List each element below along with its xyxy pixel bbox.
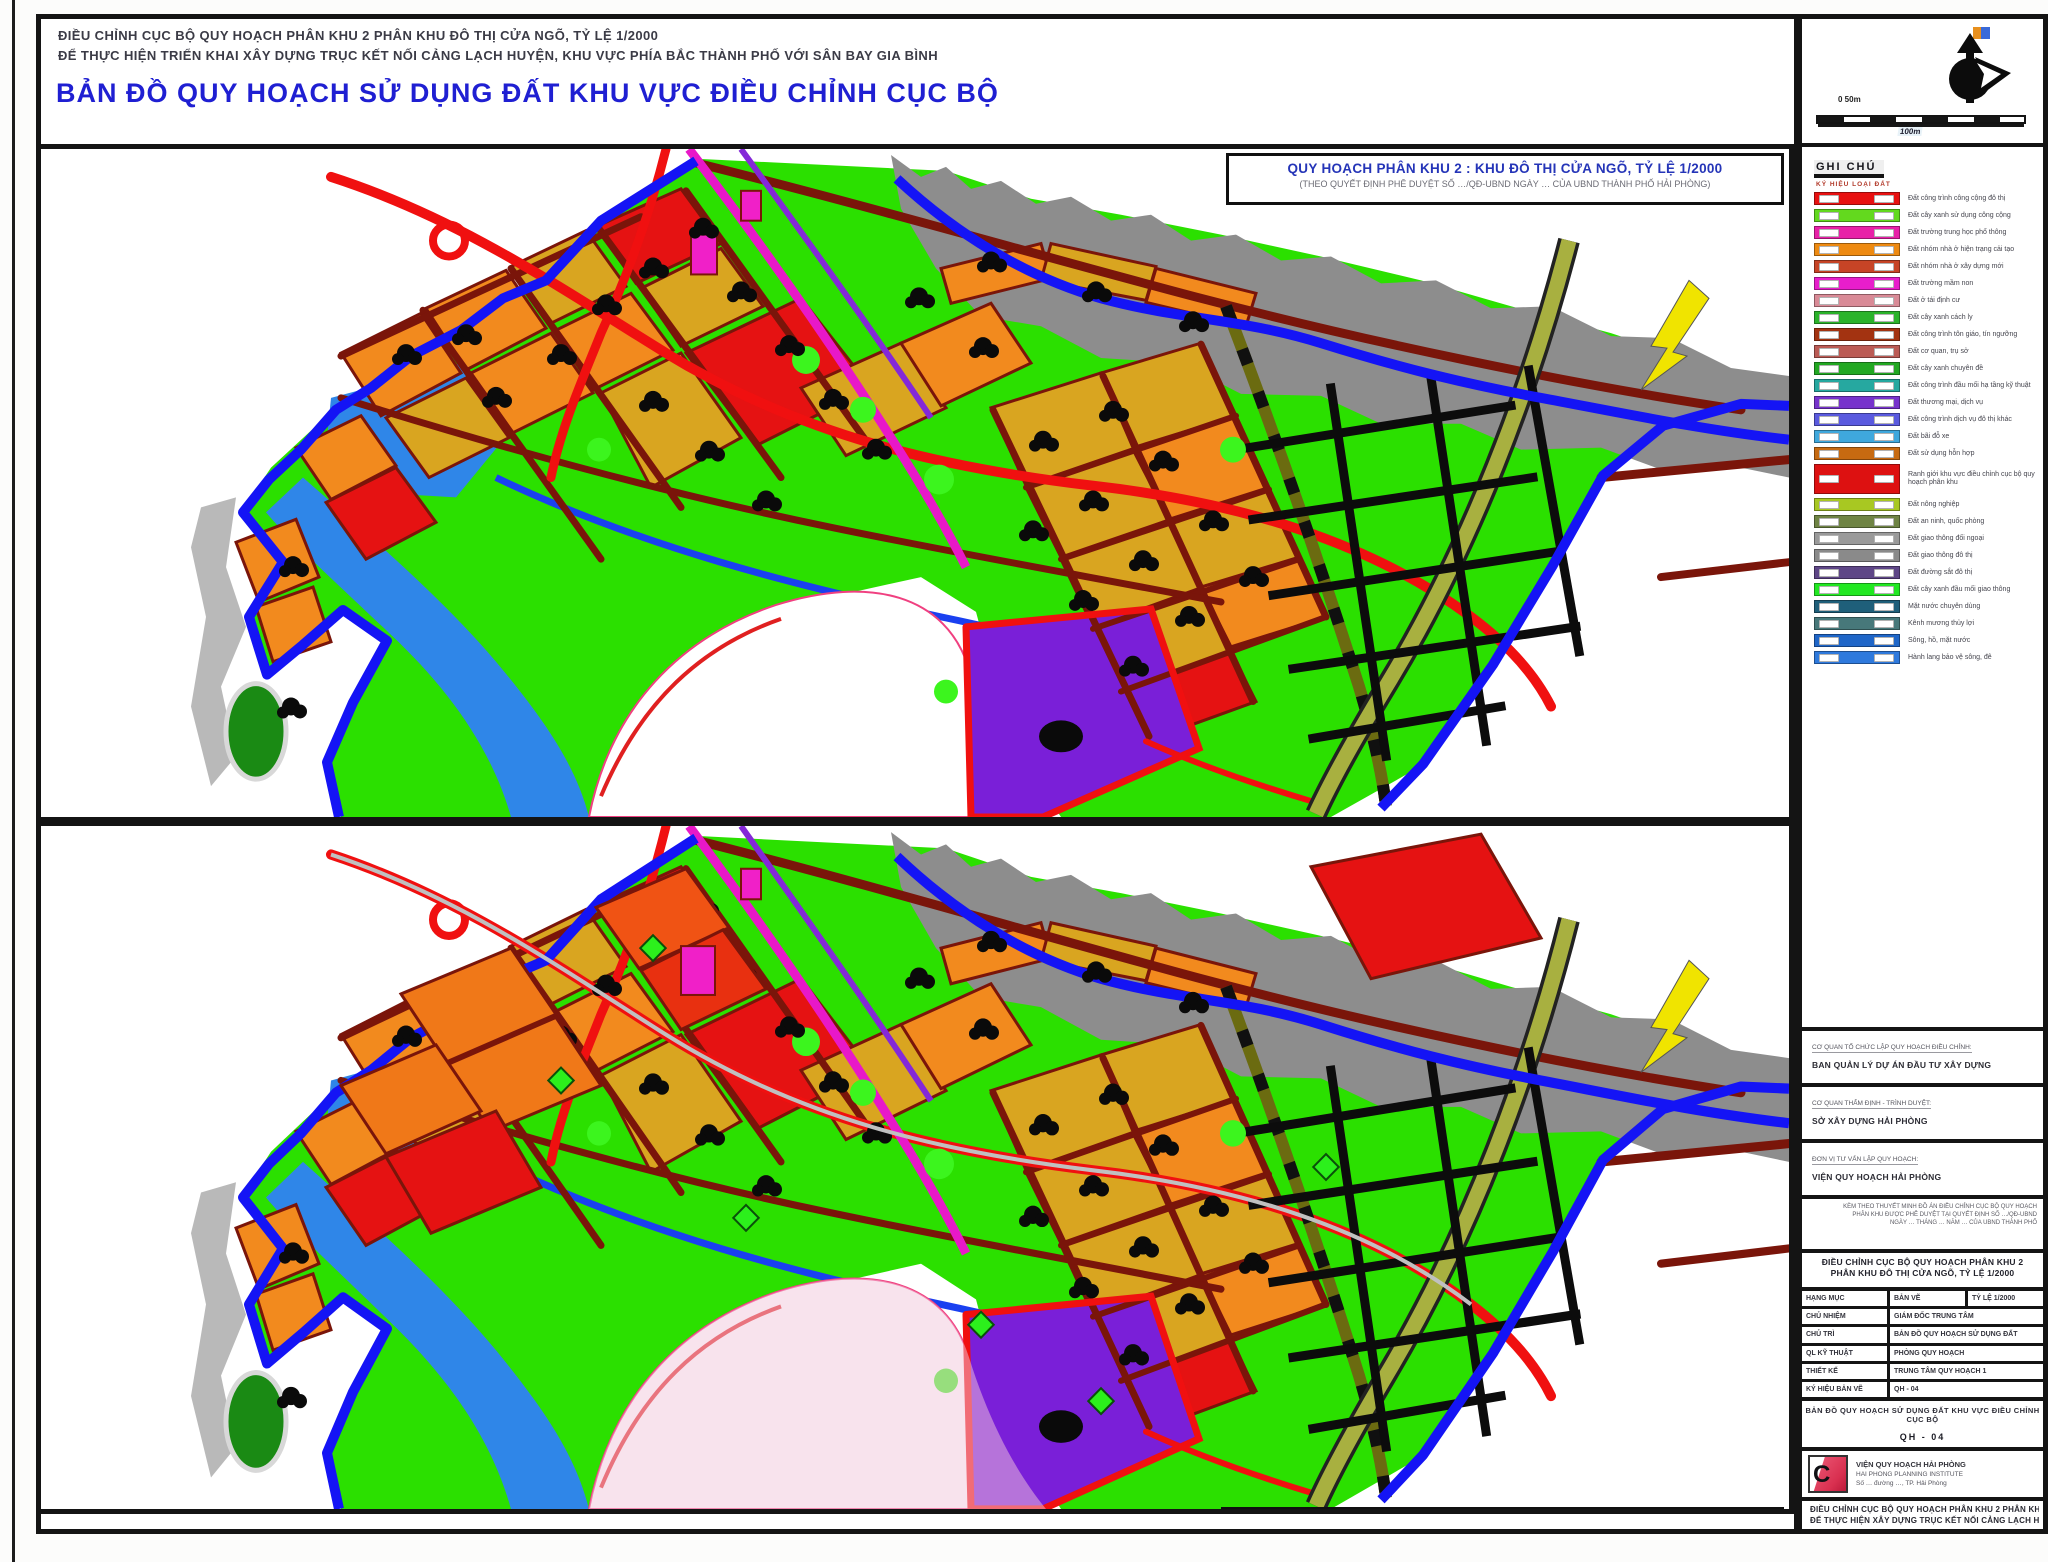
title-block-agency-row: CƠ QUAN THẨM ĐỊNH - TRÌNH DUYỆT:SỞ XÂY D…	[1802, 1087, 2043, 1143]
institute-logo-icon: C	[1808, 1455, 1848, 1493]
legend-label: Sông, hồ, mặt nước	[1908, 637, 1970, 645]
title-block-cell: CHỦ NHIỆM	[1802, 1309, 1890, 1324]
title-block-agency-row: CƠ QUAN TỔ CHỨC LẬP QUY HOẠCH ĐIỀU CHỈNH…	[1802, 1031, 2043, 1087]
legend-label: Đất giao thông đối ngoại	[1908, 535, 1984, 543]
legend-swatch	[1814, 413, 1900, 426]
legend-subtitle: KÝ HIỆU LOẠI ĐẤT	[1816, 181, 2043, 188]
legend-swatch	[1814, 277, 1900, 290]
legend-swatch	[1814, 311, 1900, 324]
legend-swatch	[1814, 192, 1900, 205]
legend-label: Đất trường trung học phổ thông	[1908, 229, 2006, 237]
legend-swatch	[1814, 430, 1900, 443]
legend-item: Đất thương mại, dịch vụ	[1814, 396, 2043, 409]
title-block-cell: TỶ LỆ 1/2000	[1968, 1291, 2043, 1306]
legend-item: Hành lang bảo vệ sông, đê	[1814, 651, 2043, 664]
legend-swatch	[1814, 617, 1900, 630]
title-block-agency-row: ĐƠN VỊ TƯ VẤN LẬP QUY HOẠCH:VIỆN QUY HOẠ…	[1802, 1143, 2043, 1199]
legend-label: Đất cây xanh đầu mối giao thông	[1908, 586, 2010, 594]
title-block-cell: PHÒNG QUY HOẠCH	[1890, 1346, 2043, 1361]
title-block-cell: QL KỸ THUẬT	[1802, 1346, 1890, 1361]
legend-item: Đất nhóm nhà ở xây dựng mới	[1814, 260, 2043, 273]
planning-sheet: ĐIỀU CHỈNH CỤC BỘ QUY HOẠCH PHÂN KHU 2 P…	[0, 0, 2048, 1562]
title-block-table-row: CHỦ NHIỆMGIÁM ĐỐC TRUNG TÂM	[1802, 1309, 2043, 1327]
legend-label: Đất nhóm nhà ở xây dựng mới	[1908, 263, 2004, 271]
legend-label: Đất giao thông đô thị	[1908, 552, 1973, 560]
title-block-cell: CHỦ TRÌ	[1802, 1327, 1890, 1342]
sidebar: 0 50m 100m GHI CHÚ KÝ HIỆU LOẠI ĐẤT Đất …	[1794, 14, 2048, 1534]
legend-label: Đất nông nghiệp	[1908, 501, 1959, 509]
legend-label: Đất công trình đầu mối hạ tầng kỹ thuật	[1908, 382, 2031, 390]
logo-letter: C	[1813, 1461, 1830, 1489]
legend-swatch	[1814, 634, 1900, 647]
title-block-cell: TRUNG TÂM QUY HOẠCH 1	[1890, 1364, 2043, 1379]
header-line-2: ĐỂ THỰC HIỆN TRIỂN KHAI XÂY DỰNG TRỤC KẾ…	[58, 48, 938, 63]
legend-swatch	[1814, 651, 1900, 664]
legend-item: Đất cơ quan, trụ sở	[1814, 345, 2043, 358]
footer-line: ĐIỀU CHỈNH CỤC BỘ QUY HOẠCH PHÂN KHU 2 P…	[1810, 1504, 2039, 1515]
legend-swatch	[1814, 294, 1900, 307]
legend-swatch	[1814, 532, 1900, 545]
note-line: PHÂN KHU ĐƯỢC PHÊ DUYỆT TẠI QUYẾT ĐỊNH S…	[1816, 1211, 2037, 1219]
drawing-title-line1: ĐIỀU CHỈNH CỤC BỘ QUY HOẠCH PHÂN KHU 2	[1802, 1257, 2043, 1268]
legend-label: Đất công trình tôn giáo, tín ngưỡng	[1908, 331, 2017, 339]
title-block-agencies: CƠ QUAN TỔ CHỨC LẬP QUY HOẠCH ĐIỀU CHỈNH…	[1802, 1031, 2043, 1199]
legend-item: Đất công trình dịch vụ đô thị khác	[1814, 413, 2043, 426]
adjusted-plan-banner: ĐIỀU CHỈNH KỲ NÀY	[1221, 1507, 1784, 1509]
logo-line: VIỆN QUY HOẠCH HẢI PHÒNG	[1856, 1460, 1966, 1470]
legend-item: Đất giao thông đối ngoại	[1814, 532, 2043, 545]
scale-label-top: 0 50m	[1836, 95, 1863, 104]
legend-swatch	[1814, 583, 1900, 596]
legend-item: Đất công trình tôn giáo, tín ngưỡng	[1814, 328, 2043, 341]
legend-item: Đất giao thông đô thị	[1814, 549, 2043, 562]
title-block-table-row: CHỦ TRÌBẢN ĐỒ QUY HOẠCH SỬ DỤNG ĐẤT	[1802, 1327, 2043, 1345]
legend-label: Đất sử dụng hỗn hợp	[1908, 450, 1975, 458]
legend-item: Đất đường sắt đô thị	[1814, 566, 2043, 579]
legend-swatch	[1814, 243, 1900, 256]
adjusted-plan-map	[41, 826, 1789, 1509]
legend-label: Đất cây xanh sử dụng công cộng	[1908, 212, 2011, 220]
title-block-table-row: QL KỸ THUẬTPHÒNG QUY HOẠCH	[1802, 1346, 2043, 1364]
legend-label: Đất cây xanh chuyên đề	[1908, 365, 1983, 373]
legend-label: Đất công trình dịch vụ đô thị khác	[1908, 416, 2012, 424]
north-arrow-icon	[1925, 25, 2015, 117]
legend-item: Ranh giới khu vực điều chỉnh cục bộ quy …	[1814, 464, 2043, 494]
title-block-cell: QH - 04	[1890, 1382, 2043, 1397]
scale-label-bottom: 100m	[1897, 127, 1923, 136]
map-area: QUY HOẠCH PHÂN KHU 2 : KHU ĐÔ THỊ CỬA NG…	[36, 144, 1794, 1514]
legend-swatch	[1814, 328, 1900, 341]
legend-title: GHI CHÚ	[1814, 160, 1884, 178]
legend-item: Đất cây xanh cách ly	[1814, 311, 2043, 324]
title-block-table: HẠNG MỤCBẢN VẼTỶ LỆ 1/2000CHỦ NHIỆMGIÁM …	[1802, 1291, 2043, 1401]
legend-swatch	[1814, 566, 1900, 579]
legend-item: Mặt nước chuyên dùng	[1814, 600, 2043, 613]
legend-label: Đất an ninh, quốc phòng	[1908, 518, 1984, 526]
page-title: BẢN ĐỒ QUY HOẠCH SỬ DỤNG ĐẤT KHU VỰC ĐIỀ…	[56, 78, 999, 109]
legend-item: Đất trường mầm non	[1814, 277, 2043, 290]
approved-plan-banner: QUY HOẠCH PHÂN KHU 2 : KHU ĐÔ THỊ CỬA NG…	[1226, 153, 1784, 205]
title-block-cell: BẢN ĐỒ QUY HOẠCH SỬ DỤNG ĐẤT	[1890, 1327, 2043, 1342]
legend-swatch	[1814, 209, 1900, 222]
legend-item: Đất công trình đầu mối hạ tầng kỹ thuật	[1814, 379, 2043, 392]
legend-swatch	[1814, 226, 1900, 239]
legend-item: Đất cây xanh đầu mối giao thông	[1814, 583, 2043, 596]
title-block-notes: KÈM THEO THUYẾT MINH ĐỒ ÁN ĐIỀU CHỈNH CỤ…	[1802, 1199, 2043, 1253]
map-panel-approved-plan: QUY HOẠCH PHÂN KHU 2 : KHU ĐÔ THỊ CỬA NG…	[41, 149, 1789, 817]
sheet-number: QH - 04	[1802, 1432, 2043, 1442]
legend-swatch	[1814, 345, 1900, 358]
scale-bar	[1816, 115, 2026, 124]
sheet-footer: ĐIỀU CHỈNH CỤC BỘ QUY HOẠCH PHÂN KHU 2 P…	[1802, 1501, 2043, 1526]
legend-item: Đất bãi đỗ xe	[1814, 430, 2043, 443]
map-divider	[41, 817, 1789, 826]
logo-line: Số … đường …, TP. Hải Phòng	[1856, 1479, 1966, 1488]
legend-swatch	[1814, 464, 1900, 494]
left-margin-line	[12, 0, 15, 1562]
legend-swatch	[1814, 396, 1900, 409]
legend-label: Đất ở tái định cư	[1908, 297, 1960, 305]
note-line: NGÀY … THÁNG … NĂM … CỦA UBND THÀNH PHỐ	[1816, 1219, 2037, 1227]
title-block-cell: BẢN VẼ	[1890, 1291, 1968, 1306]
legend-label: Đất cơ quan, trụ sở	[1908, 348, 1969, 356]
title-block-cell: THIẾT KẾ	[1802, 1364, 1890, 1379]
legend-label: Ranh giới khu vực điều chỉnh cục bộ quy …	[1908, 471, 2038, 487]
legend-item: Đất công trình công cộng đô thị	[1814, 192, 2043, 205]
legend-label: Kênh mương thủy lợi	[1908, 620, 1974, 628]
legend-item: Đất nông nghiệp	[1814, 498, 2043, 511]
legend-label: Hành lang bảo vệ sông, đê	[1908, 654, 1992, 662]
legend-swatch	[1814, 447, 1900, 460]
legend-item: Đất nhóm nhà ở hiện trạng cải tạo	[1814, 243, 2043, 256]
logo-line: HAI PHONG PLANNING INSTITUTE	[1856, 1470, 1966, 1479]
title-block-cell: HẠNG MỤC	[1802, 1291, 1890, 1306]
title-block-cell: KÝ HIỆU BẢN VẼ	[1802, 1382, 1890, 1397]
legend-swatch	[1814, 379, 1900, 392]
legend-label: Đất nhóm nhà ở hiện trạng cải tạo	[1908, 246, 2014, 254]
legend: GHI CHÚ KÝ HIỆU LOẠI ĐẤT Đất công trình …	[1802, 147, 2043, 1031]
legend-label: Đất cây xanh cách ly	[1908, 314, 1973, 322]
legend-label: Đất bãi đỗ xe	[1908, 433, 1949, 441]
legend-swatch	[1814, 515, 1900, 528]
legend-swatch	[1814, 260, 1900, 273]
title-block-table-row: THIẾT KẾTRUNG TÂM QUY HOẠCH 1	[1802, 1364, 2043, 1382]
institute-logo-row: C VIỆN QUY HOẠCH HẢI PHÒNG HAI PHONG PLA…	[1802, 1451, 2043, 1501]
legend-item: Sông, hồ, mặt nước	[1814, 634, 2043, 647]
drawing-title-block: ĐIỀU CHỈNH CỤC BỘ QUY HOẠCH PHÂN KHU 2 P…	[1802, 1253, 2043, 1291]
legend-swatch	[1814, 498, 1900, 511]
header-line-1: ĐIỀU CHỈNH CỤC BỘ QUY HOẠCH PHÂN KHU 2 P…	[58, 28, 658, 43]
legend-swatch	[1814, 549, 1900, 562]
legend-item: Đất an ninh, quốc phòng	[1814, 515, 2043, 528]
approved-plan-banner-subtitle: (THEO QUYẾT ĐỊNH PHÊ DUYỆT SỐ …/QĐ-UBND …	[1229, 179, 1781, 189]
title-block-cell: GIÁM ĐỐC TRUNG TÂM	[1890, 1309, 2043, 1324]
map-panel-adjusted-plan: ĐIỀU CHỈNH KỲ NÀY	[41, 826, 1789, 1509]
legend-item: Kênh mương thủy lợi	[1814, 617, 2043, 630]
sheet-title: BẢN ĐỒ QUY HOẠCH SỬ DỤNG ĐẤT KHU VỰC ĐIỀ…	[1802, 1406, 2043, 1424]
approved-plan-banner-title: QUY HOẠCH PHÂN KHU 2 : KHU ĐÔ THỊ CỬA NG…	[1229, 161, 1781, 176]
title-block-table-row: HẠNG MỤCBẢN VẼTỶ LỆ 1/2000	[1802, 1291, 2043, 1309]
legend-label: Đất thương mại, dịch vụ	[1908, 399, 1983, 407]
legend-label: Đất đường sắt đô thị	[1908, 569, 1972, 577]
legend-swatch	[1814, 362, 1900, 375]
title-block-table-row: KÝ HIỆU BẢN VẼQH - 04	[1802, 1382, 2043, 1397]
legend-item: Đất sử dụng hỗn hợp	[1814, 447, 2043, 460]
note-line: KÈM THEO THUYẾT MINH ĐỒ ÁN ĐIỀU CHỈNH CỤ…	[1816, 1203, 2037, 1211]
legend-item: Đất cây xanh chuyên đề	[1814, 362, 2043, 375]
footer-line: ĐỂ THỰC HIỆN XÂY DỰNG TRỤC KẾT NỐI CẢNG …	[1810, 1515, 2039, 1526]
legend-item: Đất ở tái định cư	[1814, 294, 2043, 307]
legend-label: Mặt nước chuyên dùng	[1908, 603, 1980, 611]
drawing-title-line2: PHÂN KHU ĐÔ THỊ CỬA NGÕ, TỶ LỆ 1/2000	[1802, 1268, 2043, 1279]
north-scale-box: 0 50m 100m	[1802, 19, 2043, 147]
sheet-info: BẢN ĐỒ QUY HOẠCH SỬ DỤNG ĐẤT KHU VỰC ĐIỀ…	[1802, 1401, 2043, 1451]
approved-plan-map	[41, 149, 1789, 817]
legend-item: Đất cây xanh sử dụng công cộng	[1814, 209, 2043, 222]
legend-swatch	[1814, 600, 1900, 613]
legend-label: Đất trường mầm non	[1908, 280, 1973, 288]
legend-label: Đất công trình công cộng đô thị	[1908, 195, 2005, 203]
legend-item: Đất trường trung học phổ thông	[1814, 226, 2043, 239]
legend-items: Đất công trình công cộng đô thịĐất cây x…	[1814, 192, 2043, 664]
